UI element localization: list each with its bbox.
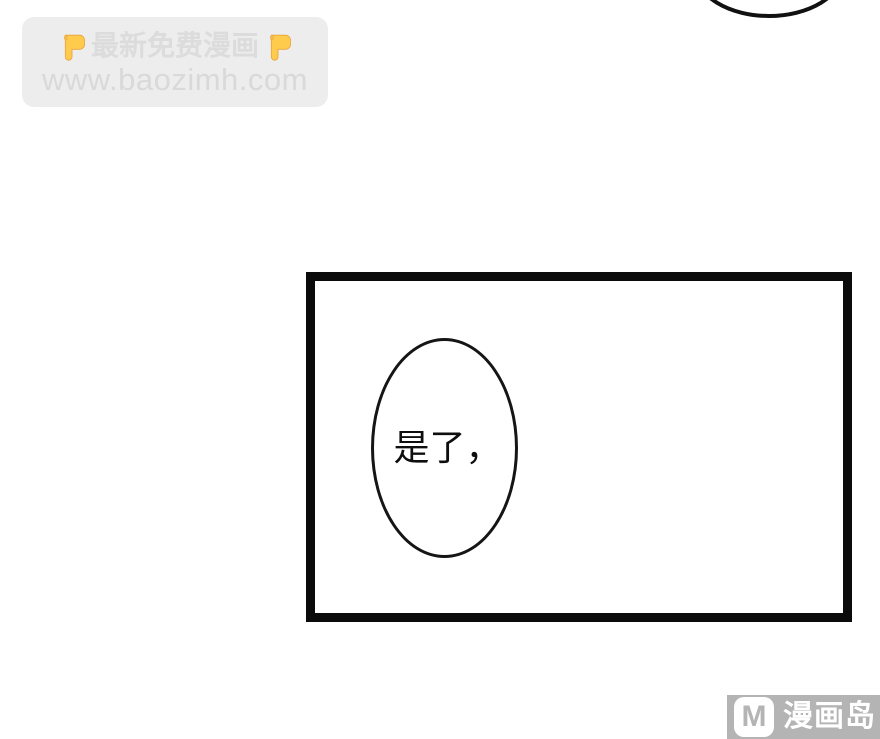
- logo-m-badge: M: [734, 697, 774, 737]
- partial-speech-bubble-arc: [680, 0, 860, 24]
- point-down-icon: [57, 30, 87, 62]
- watermark-line1: 最新免费漫画: [57, 30, 293, 62]
- logo-badge-letter: M: [742, 702, 767, 732]
- watermark-banner: 最新免费漫画 www.baozimh.com: [22, 17, 328, 107]
- point-down-icon: [263, 30, 293, 62]
- manhuadao-logo: M 漫画岛: [727, 695, 880, 739]
- logo-site-name: 漫画岛: [783, 702, 876, 732]
- watermark-url: www.baozimh.com: [42, 64, 308, 95]
- comic-page: 最新免费漫画 www.baozimh.com 是了， M 漫画岛: [0, 0, 880, 739]
- watermark-text: 最新免费漫画: [91, 32, 259, 60]
- dialogue-text: 是了，: [387, 430, 501, 466]
- speech-bubble: 是了，: [371, 338, 518, 558]
